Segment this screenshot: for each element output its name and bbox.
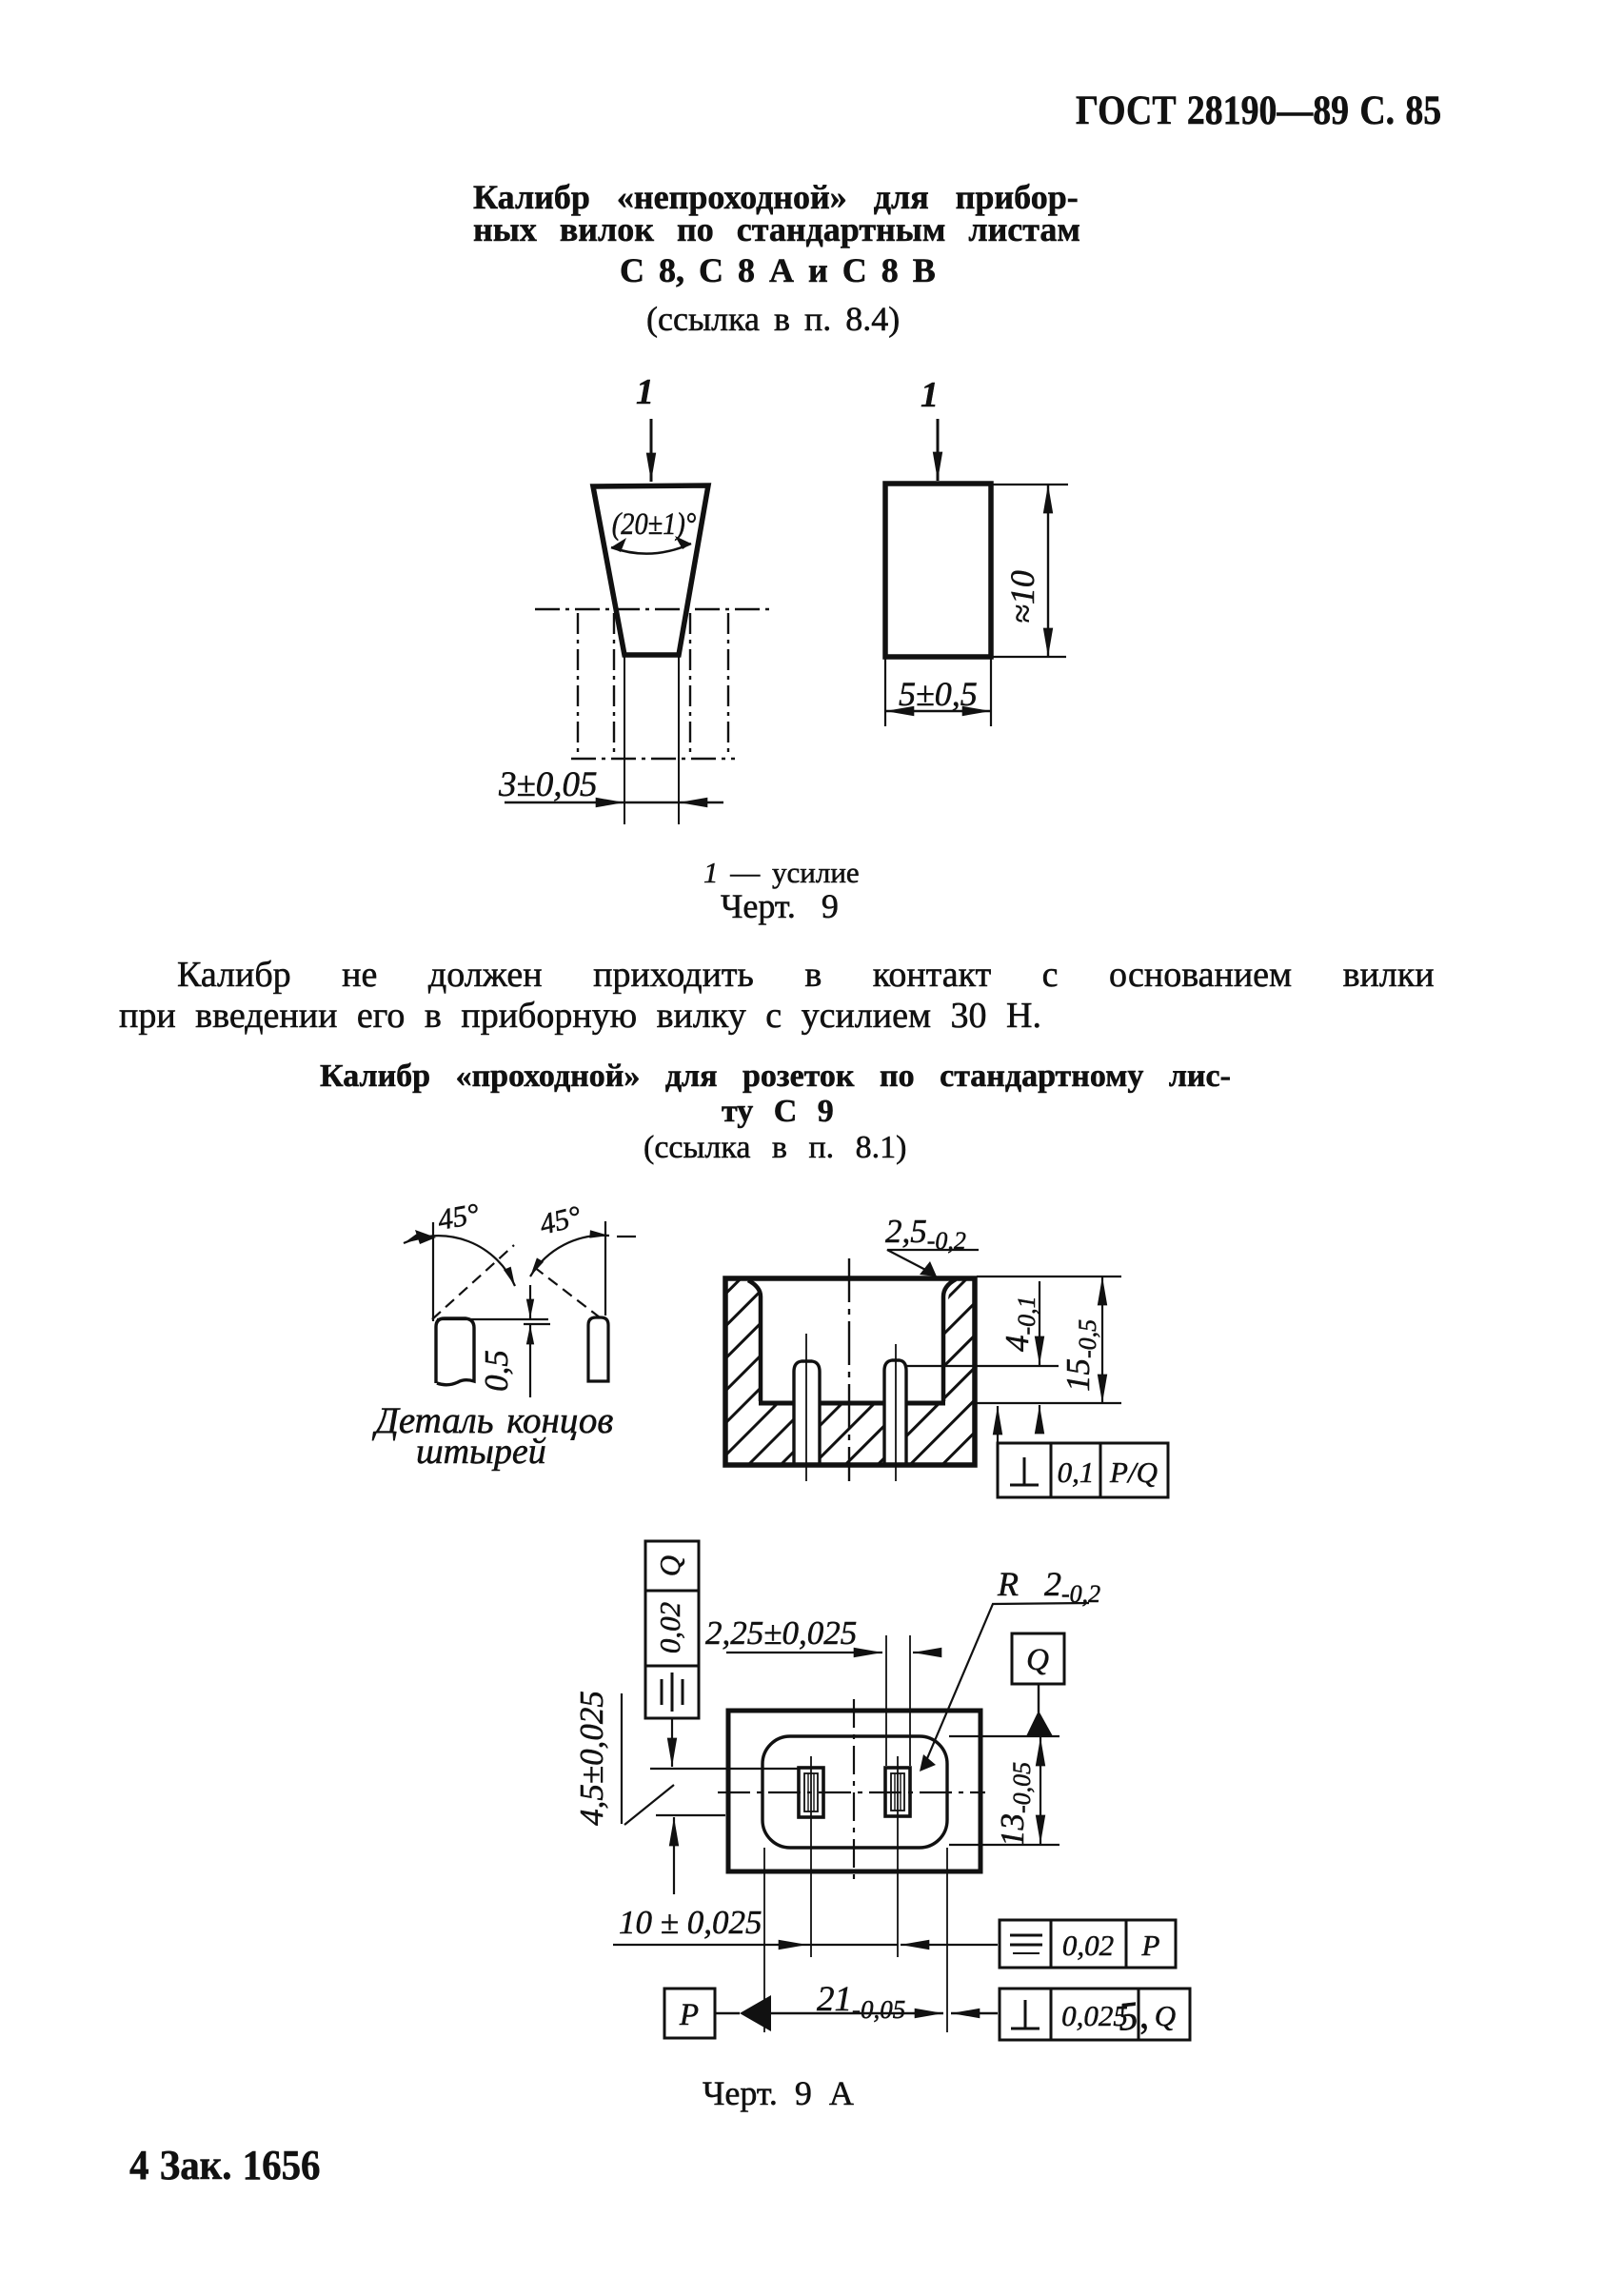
svg-text:0,02: 0,02 <box>653 1602 686 1653</box>
svg-text:4-0,1: 4-0,1 <box>999 1296 1040 1352</box>
svg-text:4,5±0,025: 4,5±0,025 <box>573 1691 610 1826</box>
svg-text:45°: 45° <box>536 1198 584 1240</box>
svg-text:R 2-0,2: R 2-0,2 <box>997 1565 1100 1608</box>
svg-text:2,5-0,2: 2,5-0,2 <box>885 1213 966 1255</box>
svg-text:P/Q: P/Q <box>1109 1455 1158 1489</box>
svg-text:0,5: 0,5 <box>478 1350 515 1392</box>
svg-text:0,1: 0,1 <box>1058 1455 1095 1489</box>
svg-text:P: P <box>1141 1929 1160 1962</box>
svg-text:5±0,5: 5±0,5 <box>899 675 978 713</box>
svg-text:13-0,05: 13-0,05 <box>994 1762 1036 1847</box>
svg-text:3±0,05: 3±0,05 <box>498 765 598 804</box>
svg-text:≈10: ≈10 <box>1003 570 1041 623</box>
svg-text:Q: Q <box>1155 1999 1176 2032</box>
svg-text:45°: 45° <box>435 1197 482 1237</box>
svg-text:10 ± 0,025: 10 ± 0,025 <box>619 1904 762 1941</box>
svg-text:21-0,05: 21-0,05 <box>817 1980 905 2024</box>
svg-text:15-0,5: 15-0,5 <box>1059 1319 1101 1392</box>
svg-text:Q: Q <box>653 1555 686 1576</box>
svg-text:1: 1 <box>921 375 939 415</box>
svg-text:2,25±0,025: 2,25±0,025 <box>705 1614 857 1652</box>
svg-text:P: P <box>679 1998 699 2032</box>
svg-text:1: 1 <box>636 372 654 412</box>
svg-text:0,02: 0,02 <box>1062 1929 1114 1962</box>
svg-text:(20±1)°: (20±1)° <box>612 506 696 541</box>
svg-text:5,: 5, <box>1116 1993 1150 2040</box>
svg-text:Q: Q <box>1026 1643 1049 1677</box>
